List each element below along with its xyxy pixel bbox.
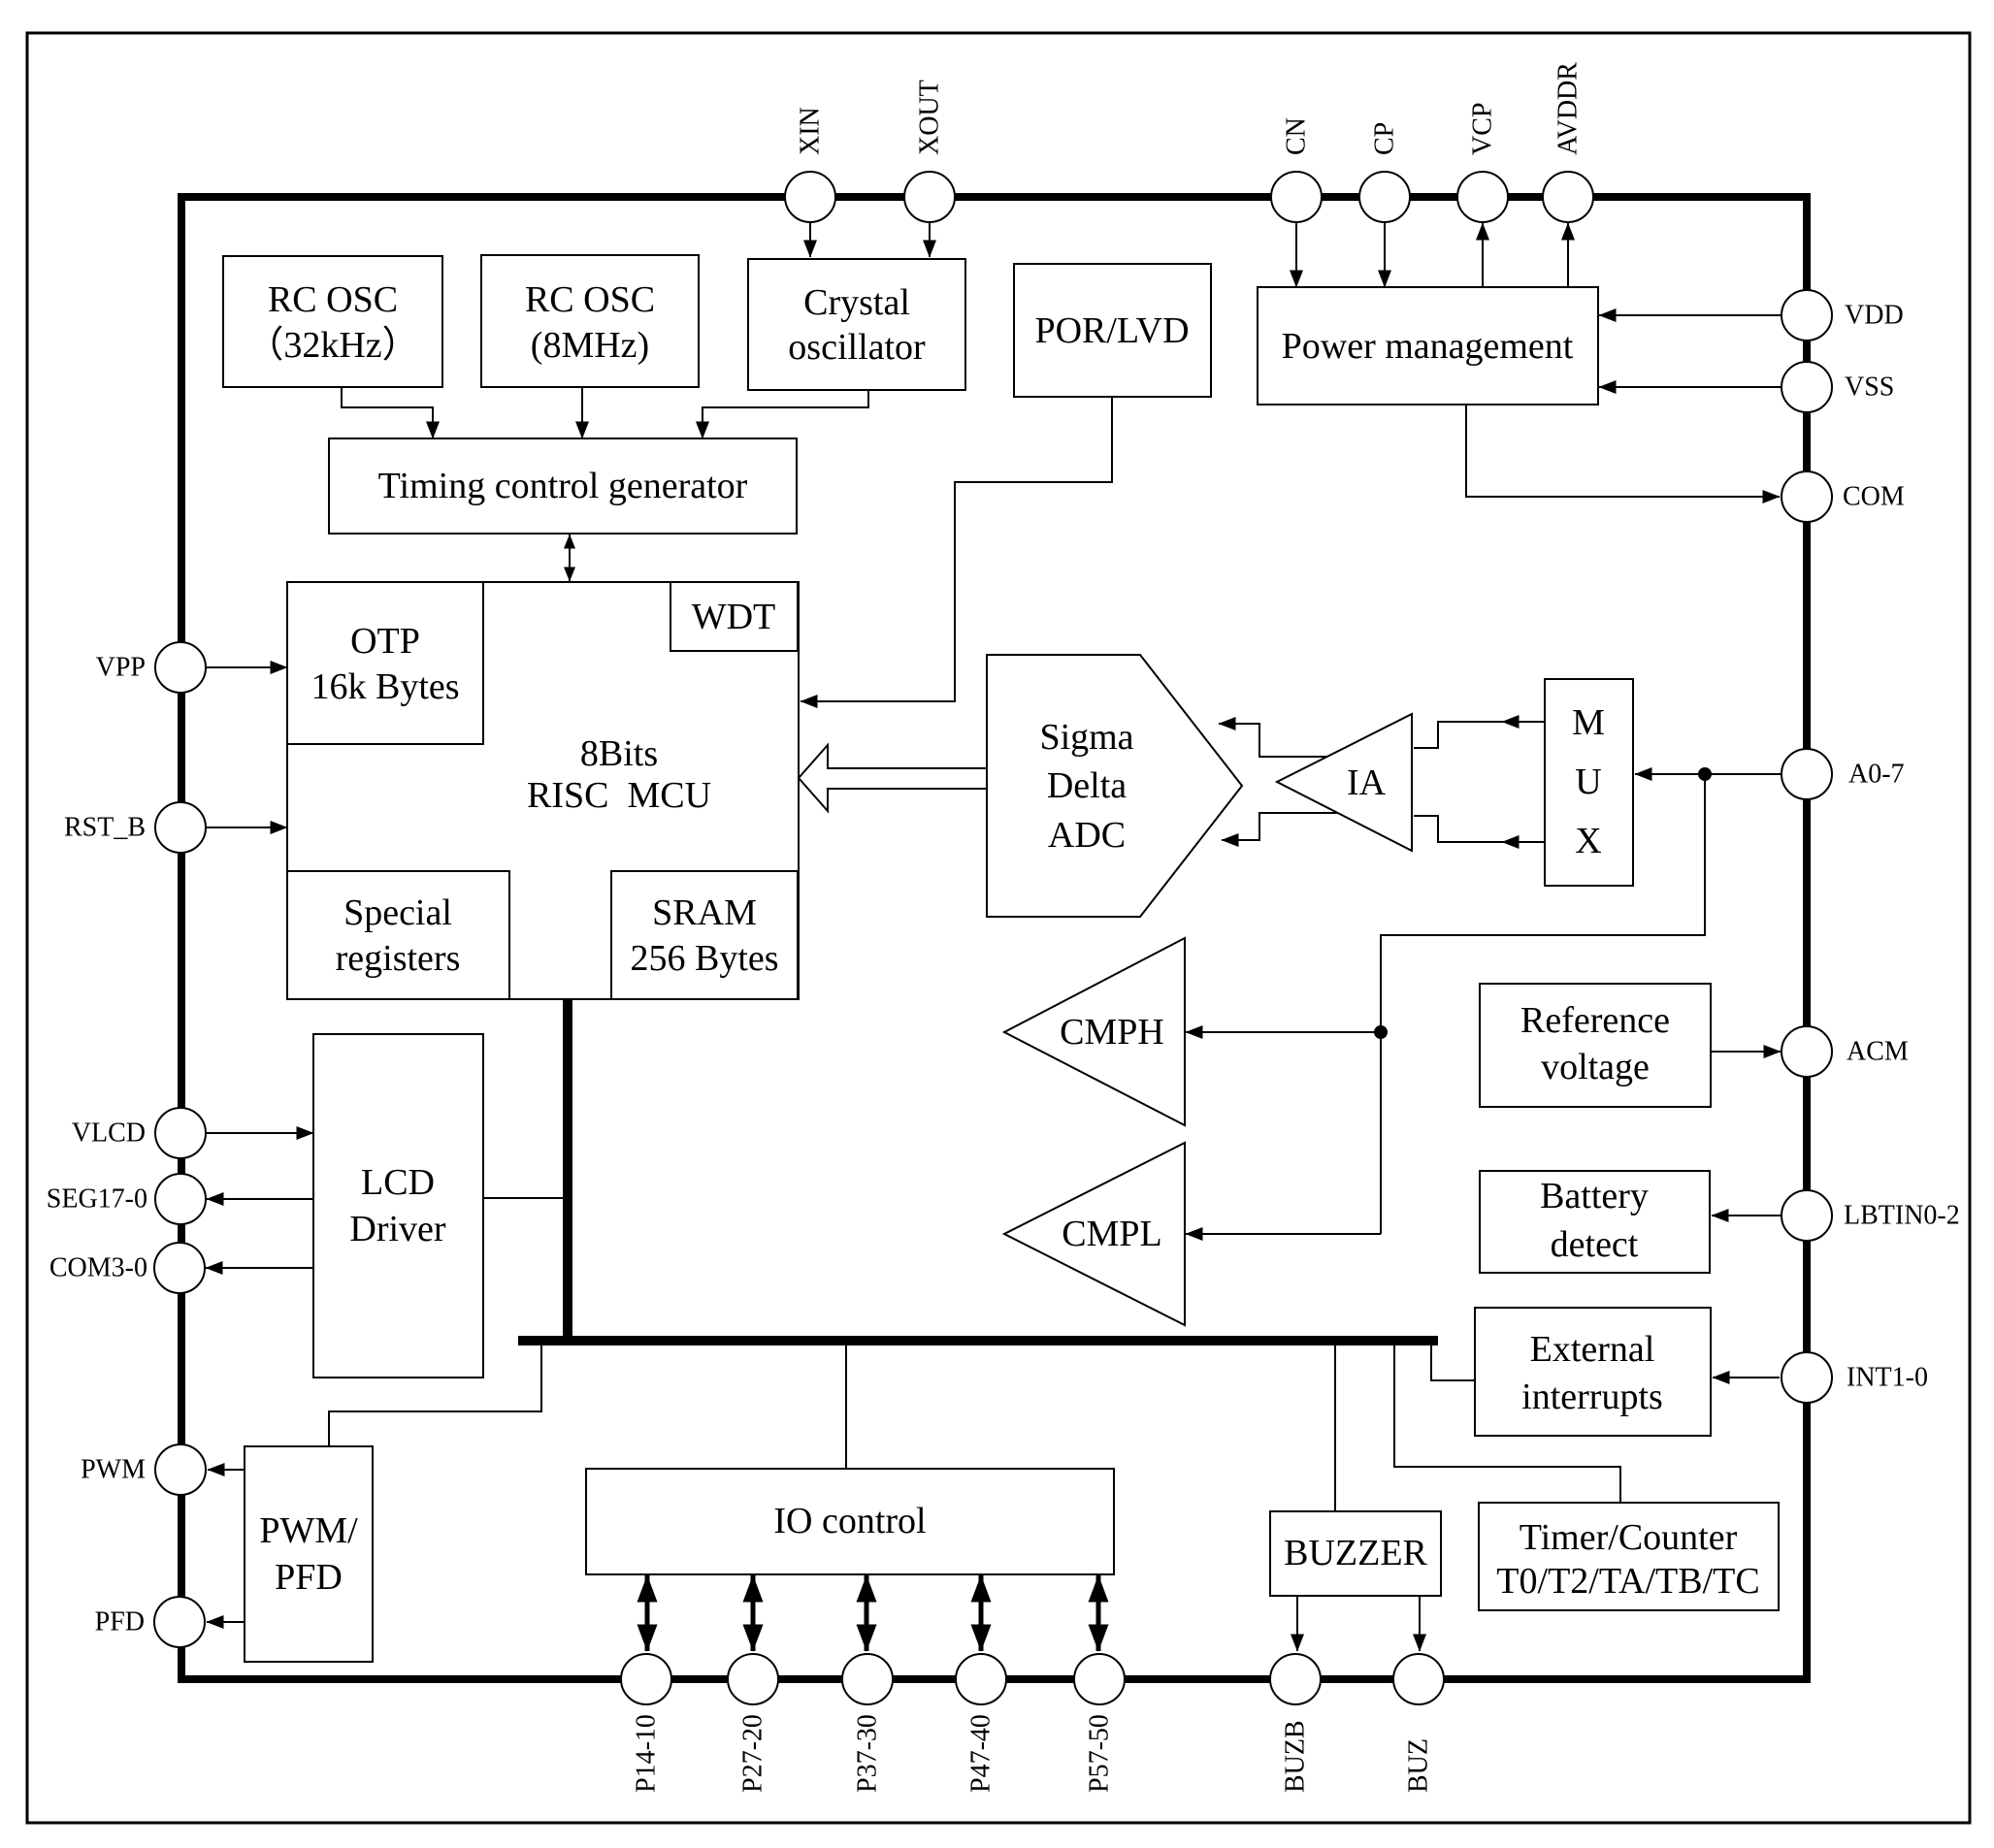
- svg-text:SEG17-0: SEG17-0: [47, 1184, 147, 1215]
- svg-text:OTP: OTP: [350, 621, 420, 662]
- svg-text:ADC: ADC: [1048, 815, 1126, 856]
- svg-text:P57-50: P57-50: [1085, 1714, 1115, 1793]
- svg-text:U: U: [1575, 762, 1601, 802]
- svg-text:PWM/: PWM/: [259, 1510, 358, 1551]
- svg-text:registers: registers: [336, 938, 461, 979]
- svg-text:P14-10: P14-10: [632, 1714, 662, 1793]
- svg-text:16k Bytes: 16k Bytes: [311, 666, 459, 707]
- svg-text:Battery: Battery: [1540, 1176, 1649, 1216]
- svg-text:LCD: LCD: [361, 1162, 435, 1203]
- svg-text:VSS: VSS: [1845, 373, 1894, 403]
- svg-text:CP: CP: [1370, 122, 1400, 155]
- svg-text:M: M: [1572, 702, 1605, 743]
- svg-text:External: External: [1530, 1329, 1655, 1370]
- svg-text:WDT: WDT: [692, 597, 776, 637]
- svg-text:XIN: XIN: [796, 107, 826, 155]
- svg-text:ACM: ACM: [1847, 1037, 1909, 1067]
- svg-text:detect: detect: [1551, 1224, 1639, 1265]
- svg-text:RC OSC: RC OSC: [268, 279, 398, 320]
- svg-text:CMPH: CMPH: [1060, 1012, 1164, 1053]
- svg-text:Special: Special: [343, 892, 452, 933]
- svg-text:Driver: Driver: [349, 1209, 446, 1249]
- svg-text:Timing control generator: Timing control generator: [378, 466, 748, 506]
- svg-text:INT1-0: INT1-0: [1847, 1363, 1928, 1393]
- svg-text:VCP: VCP: [1468, 103, 1498, 155]
- svg-text:Power management: Power management: [1282, 326, 1574, 367]
- svg-text:T0/T2/TA/TB/TC: T0/T2/TA/TB/TC: [1496, 1561, 1759, 1602]
- svg-text:SRAM: SRAM: [652, 892, 757, 933]
- svg-text:VDD: VDD: [1845, 301, 1904, 331]
- svg-text:COM3-0: COM3-0: [49, 1253, 147, 1283]
- svg-text:VPP: VPP: [96, 653, 146, 683]
- svg-text:AVDDR: AVDDR: [1553, 62, 1584, 155]
- svg-text:P27-20: P27-20: [738, 1714, 768, 1793]
- svg-text:RST_B: RST_B: [64, 813, 146, 843]
- svg-text:Delta: Delta: [1047, 765, 1127, 806]
- svg-text:Sigma: Sigma: [1039, 717, 1133, 758]
- svg-text:BUZZER: BUZZER: [1284, 1533, 1427, 1573]
- svg-text:P37-30: P37-30: [853, 1714, 883, 1793]
- svg-text:(8MHz): (8MHz): [531, 325, 649, 366]
- svg-text:IA: IA: [1347, 762, 1387, 803]
- svg-text:PWM: PWM: [81, 1455, 146, 1485]
- svg-text:Crystal: Crystal: [803, 282, 910, 323]
- svg-text:IO control: IO control: [773, 1501, 926, 1541]
- svg-text:POR/LVD: POR/LVD: [1034, 310, 1189, 351]
- svg-text:voltage: voltage: [1541, 1047, 1650, 1087]
- svg-text:RC OSC: RC OSC: [525, 279, 655, 320]
- svg-text:A0-7: A0-7: [1848, 760, 1905, 790]
- svg-text:LBTIN0-2: LBTIN0-2: [1844, 1201, 1960, 1231]
- svg-text:X: X: [1575, 821, 1601, 861]
- svg-text:CN: CN: [1282, 117, 1312, 155]
- svg-text:PFD: PFD: [275, 1557, 343, 1598]
- svg-text:BUZ: BUZ: [1404, 1738, 1434, 1793]
- svg-text:interrupts: interrupts: [1521, 1377, 1663, 1417]
- svg-text:256 Bytes: 256 Bytes: [630, 938, 778, 979]
- svg-text:BUZB: BUZB: [1281, 1720, 1311, 1793]
- svg-text:PFD: PFD: [95, 1607, 145, 1637]
- svg-text:（32kHz）: （32kHz）: [246, 325, 418, 366]
- svg-text:CMPL: CMPL: [1062, 1214, 1161, 1254]
- svg-text:COM: COM: [1843, 482, 1905, 512]
- svg-text:VLCD: VLCD: [72, 1119, 146, 1149]
- svg-text:oscillator: oscillator: [788, 327, 926, 368]
- svg-text:Reference: Reference: [1520, 1000, 1670, 1041]
- svg-text:RISC MCU: RISC MCU: [527, 775, 711, 816]
- svg-text:Timer/Counter: Timer/Counter: [1520, 1517, 1738, 1558]
- svg-text:8Bits: 8Bits: [580, 733, 658, 774]
- svg-text:P47-40: P47-40: [966, 1714, 997, 1793]
- svg-text:XOUT: XOUT: [915, 80, 945, 155]
